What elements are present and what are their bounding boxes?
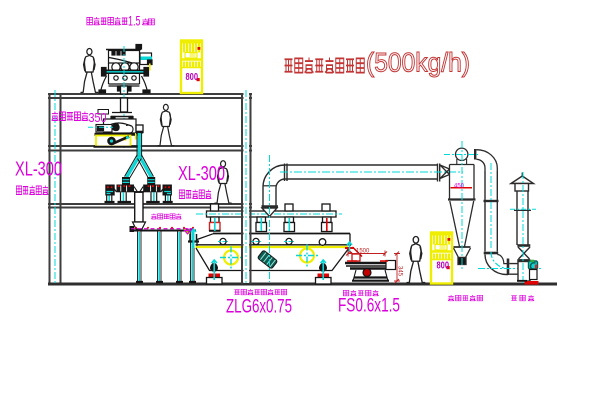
svg-text:450: 450 (454, 184, 465, 190)
svg-text:ZLG6x0.75: ZLG6x0.75 (226, 297, 292, 318)
svg-text:1.5: 1.5 (128, 14, 141, 29)
svg-text:800: 800 (186, 72, 199, 83)
svg-text:350: 350 (89, 110, 107, 125)
svg-text:XL-300: XL-300 (15, 159, 62, 181)
svg-text:1500: 1500 (356, 249, 370, 255)
svg-text:(500kg/h): (500kg/h) (366, 48, 470, 78)
svg-text:345: 345 (397, 266, 403, 277)
svg-text:FS0.6x1.5: FS0.6x1.5 (338, 296, 400, 317)
svg-text:800: 800 (437, 261, 450, 272)
svg-text:XL-300: XL-300 (178, 163, 225, 185)
